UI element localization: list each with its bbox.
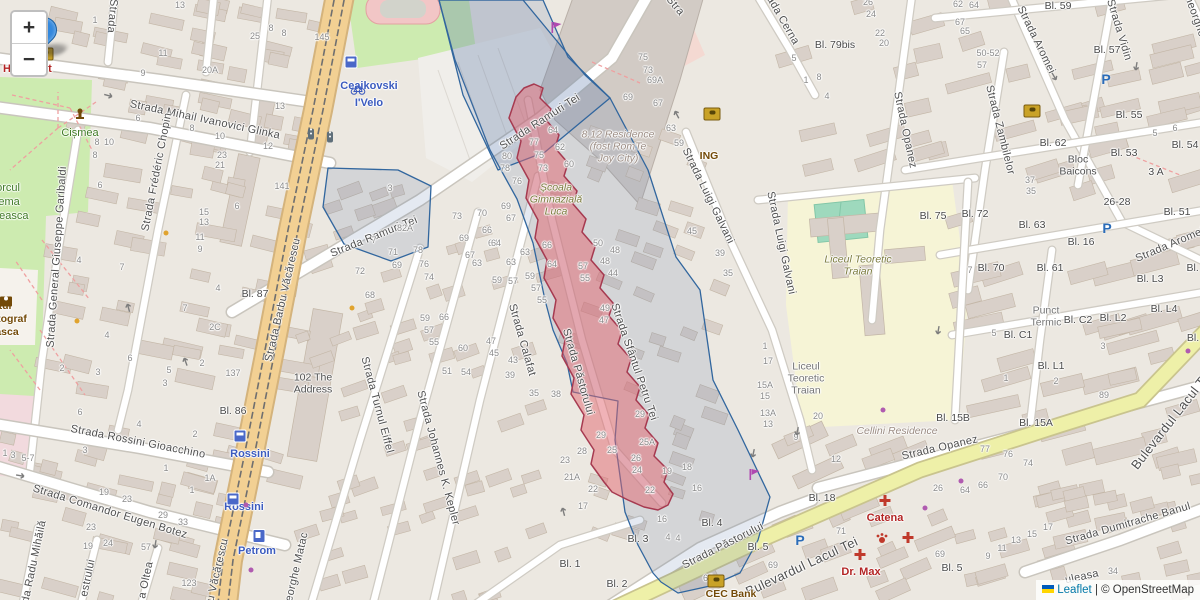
attribution-bar: Leaflet | © OpenStreetMap bbox=[1036, 580, 1200, 600]
house-number: 6 bbox=[97, 180, 102, 190]
house-number: 39 bbox=[715, 248, 725, 258]
house-number: 9 bbox=[197, 244, 202, 254]
block-label: Bl. 70 bbox=[978, 263, 1005, 275]
street-label: Bulevardul Lacul Tei bbox=[1129, 367, 1200, 472]
house-number: 16 bbox=[657, 514, 667, 524]
oneway-arrow-icon bbox=[174, 350, 196, 369]
house-number: 4 bbox=[215, 283, 220, 293]
house-number: 28 bbox=[577, 446, 587, 456]
place-label: reasca bbox=[0, 210, 29, 222]
place-label-line: Catena bbox=[867, 512, 904, 524]
house-number: 59 bbox=[420, 313, 430, 323]
paw-icon bbox=[876, 531, 888, 549]
house-number: 1A bbox=[204, 473, 215, 483]
bus-stop-icon bbox=[227, 493, 240, 506]
house-number: 66 bbox=[482, 225, 492, 235]
place-label: CEC Bank bbox=[706, 589, 757, 600]
block-label: Bl. 16 bbox=[1068, 237, 1095, 249]
place-label-line: Cișmea bbox=[61, 127, 98, 139]
block-label: Bl. 55 bbox=[1116, 110, 1143, 122]
house-number: 67 bbox=[506, 213, 516, 223]
transit-label: Petrom bbox=[238, 545, 276, 557]
house-number: 4 bbox=[136, 419, 141, 429]
block-label: Bl. 15B bbox=[936, 413, 970, 425]
block-label: Bl. 59 bbox=[1045, 1, 1072, 13]
house-number: 2 bbox=[1053, 376, 1058, 386]
house-number: 57 bbox=[977, 60, 987, 70]
block-label: Bl. 62 bbox=[1040, 138, 1067, 150]
house-number: 26 bbox=[933, 483, 943, 493]
house-number: 43 bbox=[508, 355, 518, 365]
house-number: 71 bbox=[836, 526, 846, 536]
house-number: 48 bbox=[610, 245, 620, 255]
street-label: a Oltea bbox=[136, 560, 156, 599]
house-number: 7 bbox=[119, 262, 124, 272]
house-number: 2C bbox=[209, 322, 221, 332]
house-number: 76 bbox=[419, 259, 429, 269]
block-label: Bl. 51 bbox=[1164, 207, 1191, 219]
block-label: Bl. 86 bbox=[220, 406, 247, 418]
transit-label: Ceaikovski bbox=[340, 80, 397, 92]
place-label: Catena bbox=[867, 512, 904, 524]
place-label: 8.12 Residence(fost RomTeJoy City) bbox=[582, 129, 655, 164]
place-label-line: nema bbox=[0, 196, 20, 208]
map-canvas[interactable]: Strada Mihail Ivanovici GlinkaStrada Fré… bbox=[0, 0, 1200, 600]
house-number: 8 bbox=[92, 150, 97, 160]
place-label-line: Traian bbox=[824, 266, 891, 278]
house-number: 62 bbox=[555, 142, 565, 152]
house-number: 73 bbox=[538, 163, 548, 173]
house-number: 3 bbox=[1100, 341, 1105, 351]
house-number: 69 bbox=[459, 233, 469, 243]
block-label: Bl. 61 bbox=[1037, 263, 1064, 275]
house-number: 35 bbox=[529, 388, 539, 398]
osm-copyright: © OpenStreetMap bbox=[1101, 584, 1194, 596]
house-number: 3 bbox=[95, 367, 100, 377]
oneway-arrow-icon bbox=[101, 85, 119, 106]
house-number: 24 bbox=[632, 465, 642, 475]
poi-dot-icon bbox=[75, 319, 80, 324]
house-number: 63 bbox=[666, 123, 676, 133]
place-label-line: Baicons bbox=[1059, 166, 1096, 178]
place-label-line: asca bbox=[0, 327, 19, 339]
house-number: 69 bbox=[392, 260, 402, 270]
street-label: Strada Frédéric Chopin bbox=[139, 112, 174, 232]
house-number: 17 bbox=[763, 356, 773, 366]
house-number: 4 bbox=[675, 533, 680, 543]
house-number: 22 bbox=[588, 484, 598, 494]
parking-icon: P bbox=[1101, 71, 1110, 89]
block-label: Bl. 75 bbox=[920, 211, 947, 223]
house-number: 7 bbox=[967, 265, 972, 275]
block-label: Bl. 15A bbox=[1019, 418, 1053, 430]
house-number: 15 bbox=[199, 207, 209, 217]
house-number: 73 bbox=[643, 65, 653, 75]
house-number: 82A bbox=[397, 223, 413, 233]
place-label-line: Liceul bbox=[788, 361, 825, 373]
house-number: 69 bbox=[623, 92, 633, 102]
house-number: 19 bbox=[662, 466, 672, 476]
block-label: Bl. 18 bbox=[809, 493, 836, 505]
house-number: 141 bbox=[274, 181, 289, 191]
place-label-line: t bbox=[48, 63, 52, 75]
house-number: 3 bbox=[162, 378, 167, 388]
bicycle-icon bbox=[351, 82, 366, 100]
house-number: 4 bbox=[665, 532, 670, 542]
house-number: 6 bbox=[1172, 123, 1177, 133]
street-label: Strada Ramuri Tei bbox=[498, 92, 583, 153]
block-label: Bl. 72 bbox=[962, 209, 989, 221]
place-label-line: Joy City) bbox=[582, 153, 655, 165]
street-label: Strada Aromei bbox=[1134, 225, 1200, 265]
house-number: 25 bbox=[250, 31, 260, 41]
house-number: 13 bbox=[175, 0, 185, 10]
house-number: 54 bbox=[461, 367, 471, 377]
house-number: 6 bbox=[77, 407, 82, 417]
street-label: Strada bbox=[104, 0, 119, 34]
street-label: Gheorghe Titeica bbox=[1179, 0, 1200, 74]
zoom-in-button[interactable]: + bbox=[12, 12, 46, 43]
place-label-line: tograf bbox=[0, 314, 27, 326]
block-label: Bl. 57 bbox=[1094, 45, 1121, 57]
tram-stop-icon bbox=[308, 127, 314, 140]
shop-dot-icon bbox=[1186, 349, 1191, 354]
place-label-line: 8.12 Residence bbox=[582, 129, 655, 141]
house-number: 145 bbox=[314, 32, 329, 42]
house-number: 13 bbox=[763, 419, 773, 429]
house-number: 74 bbox=[1023, 458, 1033, 468]
block-label: Bl. 53 bbox=[1111, 148, 1138, 160]
house-number: 64 bbox=[491, 238, 501, 248]
block-label: Bl. 5 bbox=[941, 563, 962, 575]
place-label-line: Școala bbox=[530, 182, 583, 194]
house-number: 16 bbox=[692, 483, 702, 493]
block-label: Bl. bbox=[1187, 333, 1199, 345]
house-number: 65 bbox=[960, 26, 970, 36]
block-label: Bl. 4 bbox=[701, 518, 722, 530]
attribution-separator: | bbox=[1092, 584, 1101, 596]
poi-dot-icon bbox=[350, 306, 355, 311]
house-number: 78 bbox=[500, 163, 510, 173]
house-number: 37 bbox=[1025, 175, 1035, 185]
place-label-line: Luca bbox=[530, 206, 583, 218]
block-label: 3 A bbox=[1148, 167, 1163, 179]
house-number: 26 bbox=[631, 453, 641, 463]
house-number: 57 bbox=[578, 261, 588, 271]
place-label-line: (fost RomTe bbox=[582, 141, 655, 153]
house-number: 38 bbox=[551, 389, 561, 399]
block-label: Bl. L4 bbox=[1151, 304, 1178, 316]
place-label: Dr. Max bbox=[841, 566, 880, 578]
house-number: 19 bbox=[99, 487, 109, 497]
place-label: ING bbox=[700, 151, 719, 163]
block-label: Bl. 79bis bbox=[815, 40, 855, 52]
house-number: 80 bbox=[502, 151, 512, 161]
map-label-layer: Strada Mihail Ivanovici GlinkaStrada Fré… bbox=[0, 0, 1200, 600]
place-label-line: Termic bbox=[1031, 317, 1062, 329]
house-number: 47 bbox=[486, 336, 496, 346]
bus-stop-icon bbox=[234, 430, 247, 443]
house-number: 44 bbox=[608, 268, 618, 278]
house-number: 29 bbox=[596, 430, 606, 440]
street-label: Strada Barbu Văcărescu bbox=[263, 237, 303, 363]
house-number: 123 bbox=[181, 578, 196, 588]
house-number: 25A bbox=[639, 437, 655, 447]
house-number: 24 bbox=[103, 538, 113, 548]
house-number: 89 bbox=[1099, 390, 1109, 400]
place-label-line: 102 The bbox=[294, 372, 333, 384]
tram-stop-icon bbox=[327, 130, 333, 143]
house-number: 5 bbox=[991, 328, 996, 338]
street-label: Strada Calafat bbox=[506, 302, 538, 377]
house-number: 57 bbox=[424, 325, 434, 335]
place-label-line: Punct bbox=[1031, 305, 1062, 317]
house-number: 70 bbox=[477, 208, 487, 218]
house-number: 11 bbox=[997, 543, 1006, 553]
house-number: 10 bbox=[215, 131, 225, 141]
house-number: 13 bbox=[275, 101, 285, 111]
house-number: 6 bbox=[135, 113, 140, 123]
place-label-line: CEC Bank bbox=[706, 589, 757, 600]
house-number: 15 bbox=[760, 391, 770, 401]
house-number: 73 bbox=[452, 211, 462, 221]
street-label: Strada Cerna bbox=[756, 0, 801, 47]
place-label: tograf bbox=[0, 314, 27, 326]
block-label: Bl. 87 bbox=[242, 289, 269, 301]
house-number: 3 bbox=[82, 445, 87, 455]
house-number: 45 bbox=[489, 348, 499, 358]
house-number: 15A bbox=[757, 380, 773, 390]
house-number: 3 bbox=[387, 183, 392, 193]
pharmacy-cross-icon bbox=[879, 494, 892, 512]
house-number: 9 bbox=[985, 551, 990, 561]
street-label: Stra bbox=[663, 0, 686, 18]
house-number: 66 bbox=[542, 240, 552, 250]
ukraine-flag-icon bbox=[1042, 585, 1054, 593]
house-number: 4 bbox=[824, 91, 829, 101]
house-number: 20 bbox=[879, 38, 889, 48]
place-label: nema bbox=[0, 196, 20, 208]
shop-dot-icon bbox=[244, 503, 249, 508]
block-label: Bl. L1 bbox=[1038, 361, 1065, 373]
house-number: 29 bbox=[158, 510, 168, 520]
transit-label: Rossini bbox=[230, 448, 270, 460]
place-label: t bbox=[48, 63, 52, 75]
street-label: Strada Radu Mihăilă bbox=[15, 519, 49, 600]
house-number: 63 bbox=[472, 258, 482, 268]
street-label: eorghe Matac bbox=[283, 531, 311, 600]
house-number: 7 bbox=[371, 235, 376, 245]
place-label-line: Cellini Residence bbox=[856, 426, 937, 438]
house-number: 2 bbox=[59, 363, 64, 373]
oneway-arrow-icon bbox=[117, 297, 138, 315]
house-number: 23 bbox=[122, 494, 132, 504]
house-number: 22 bbox=[875, 28, 885, 38]
leaflet-link[interactable]: Leaflet bbox=[1057, 584, 1092, 596]
fuel-icon bbox=[253, 529, 266, 543]
house-number: 60 bbox=[564, 159, 574, 169]
house-number: 7 bbox=[182, 303, 187, 313]
house-number: 5-7 bbox=[21, 453, 34, 463]
oneway-arrow-icon bbox=[665, 103, 687, 124]
shop-dot-icon bbox=[881, 408, 886, 413]
shop-dot-icon bbox=[249, 568, 254, 573]
place-label: Cișmea bbox=[61, 127, 98, 139]
bank-icon bbox=[1024, 105, 1041, 118]
shop-flag-icon bbox=[748, 468, 761, 486]
street-label: Strada General Giuseppe Garibaldi bbox=[45, 166, 70, 348]
place-label: BlocBaicons bbox=[1059, 154, 1096, 178]
house-number: 1 bbox=[1003, 373, 1008, 383]
house-number: 17 bbox=[578, 501, 588, 511]
house-number: 15 bbox=[1027, 529, 1037, 539]
oneway-arrow-icon bbox=[928, 324, 948, 341]
house-number: 50 bbox=[593, 238, 603, 248]
zoom-out-button[interactable]: − bbox=[12, 43, 46, 75]
place-label: PunctTermic bbox=[1031, 305, 1062, 329]
house-number: 35 bbox=[1026, 186, 1036, 196]
house-number: 64 bbox=[960, 485, 970, 495]
house-number: 55 bbox=[429, 337, 439, 347]
house-number: 75 bbox=[638, 52, 648, 62]
house-number: 72 bbox=[355, 266, 365, 276]
house-number: 5 bbox=[791, 53, 796, 63]
house-number: 67 bbox=[653, 98, 663, 108]
house-number: 63 bbox=[506, 257, 516, 267]
house-number: 48 bbox=[600, 256, 610, 266]
house-number: 23 bbox=[217, 150, 227, 160]
house-number: 55 bbox=[580, 273, 590, 283]
house-number: 57 bbox=[508, 276, 518, 286]
house-number: 8 bbox=[816, 72, 821, 82]
street-label: Strada Luigi Galvani bbox=[764, 190, 798, 295]
house-number: 69 bbox=[501, 201, 511, 211]
house-number: 60 bbox=[458, 343, 468, 353]
block-label: Bl. 7 bbox=[1186, 263, 1200, 275]
house-number: 55 bbox=[537, 295, 547, 305]
house-number: 59 bbox=[492, 275, 502, 285]
house-number: 69 bbox=[768, 560, 778, 570]
place-label-line: reasca bbox=[0, 210, 29, 222]
house-number: 10 bbox=[104, 137, 114, 147]
house-number: 12 bbox=[831, 454, 841, 464]
place-label-line: Gimnazială bbox=[530, 194, 583, 206]
pharmacy-cross-icon bbox=[854, 548, 867, 566]
oneway-arrow-icon bbox=[743, 446, 764, 463]
street-label: Strada Dumitrache Banul bbox=[1064, 500, 1192, 548]
parking-icon: P bbox=[1102, 220, 1111, 238]
house-number: 11 bbox=[195, 232, 204, 242]
house-number: 5 bbox=[1152, 128, 1157, 138]
house-number: 51 bbox=[442, 366, 452, 376]
block-label: Bl. 3 bbox=[627, 534, 648, 546]
house-number: 11 bbox=[158, 48, 167, 58]
street-label: Barbu Văcărescu bbox=[199, 537, 231, 600]
house-number: 1 bbox=[163, 463, 168, 473]
place-label-line: Bloc bbox=[1059, 154, 1096, 166]
house-number: 69 bbox=[935, 549, 945, 559]
house-number: 23 bbox=[560, 455, 570, 465]
house-number: 69A bbox=[647, 75, 663, 85]
house-number: 18 bbox=[682, 462, 692, 472]
place-label: 102 TheAddress bbox=[294, 372, 333, 396]
street-label: Strada Zambilelor bbox=[983, 84, 1017, 176]
street-label: Strada Turnul Eiffel bbox=[358, 355, 396, 454]
zoom-control: + − bbox=[10, 10, 48, 77]
house-number: 19 bbox=[83, 541, 93, 551]
block-label: Bl. C1 bbox=[1004, 330, 1033, 342]
house-number: 3 bbox=[10, 450, 15, 460]
shop-flag-icon bbox=[550, 21, 563, 39]
house-number: 70 bbox=[998, 472, 1008, 482]
house-number: 8 bbox=[281, 28, 286, 38]
block-label: Bl. 2 bbox=[606, 579, 627, 591]
house-number: 29 bbox=[635, 409, 645, 419]
house-number: 47 bbox=[599, 315, 609, 325]
house-number: 21 bbox=[215, 160, 225, 170]
shop-dot-icon bbox=[923, 506, 928, 511]
place-label: asca bbox=[0, 327, 19, 339]
place-label: Liceul TeoreticTraian bbox=[824, 254, 891, 278]
bus-stop-icon bbox=[345, 56, 358, 69]
house-number: 21A bbox=[564, 472, 580, 482]
street-label: Strada Sfântul Petru Tei bbox=[608, 302, 660, 422]
place-label-line: Address bbox=[294, 384, 333, 396]
house-number: 8 bbox=[189, 123, 194, 133]
bank-icon bbox=[704, 108, 721, 121]
house-number: 6 bbox=[127, 353, 132, 363]
house-number: 49 bbox=[600, 303, 610, 313]
house-number: 1 bbox=[803, 75, 808, 85]
house-number: 64 bbox=[548, 125, 558, 135]
house-number: 50-52 bbox=[976, 48, 999, 58]
house-number: 1 bbox=[762, 341, 767, 351]
oneway-arrow-icon bbox=[1126, 60, 1146, 77]
place-label-line: Dr. Max bbox=[841, 566, 880, 578]
block-label: 26-28 bbox=[1104, 197, 1131, 209]
place-label-line: Liceul Teoretic bbox=[824, 254, 891, 266]
house-number: 77 bbox=[980, 444, 990, 454]
house-number: 25 bbox=[607, 445, 617, 455]
street-label: Strada Aromei bbox=[1014, 4, 1057, 76]
house-number: 1 bbox=[2, 448, 7, 458]
block-label: Bl. C2 bbox=[1064, 315, 1093, 327]
block-label: Bl. 1 bbox=[559, 559, 580, 571]
oneway-arrow-icon bbox=[787, 424, 808, 441]
house-number: 35 bbox=[723, 268, 733, 278]
house-number: 59 bbox=[525, 271, 535, 281]
place-label-line: ING bbox=[700, 151, 719, 163]
place-label: orcul bbox=[0, 182, 20, 194]
house-number: 68 bbox=[365, 290, 375, 300]
oneway-arrow-icon bbox=[552, 501, 573, 519]
house-number: 9 bbox=[140, 68, 145, 78]
fountain-icon bbox=[74, 107, 86, 125]
house-number: 45 bbox=[687, 226, 697, 236]
house-number: 20 bbox=[813, 411, 823, 421]
house-number: 23 bbox=[86, 522, 96, 532]
street-label: Strada Păstorului bbox=[560, 327, 597, 416]
street-label: Strada Johannes K. Kepler bbox=[414, 389, 462, 526]
shop-dot-icon bbox=[959, 479, 964, 484]
bank-icon bbox=[708, 575, 725, 588]
house-number: 59 bbox=[674, 138, 684, 148]
place-label-line: Traian bbox=[788, 385, 825, 397]
house-number: 13A bbox=[760, 408, 776, 418]
street-label: estrului bbox=[78, 558, 98, 598]
house-number: 63 bbox=[520, 247, 530, 257]
house-number: 137 bbox=[225, 368, 240, 378]
